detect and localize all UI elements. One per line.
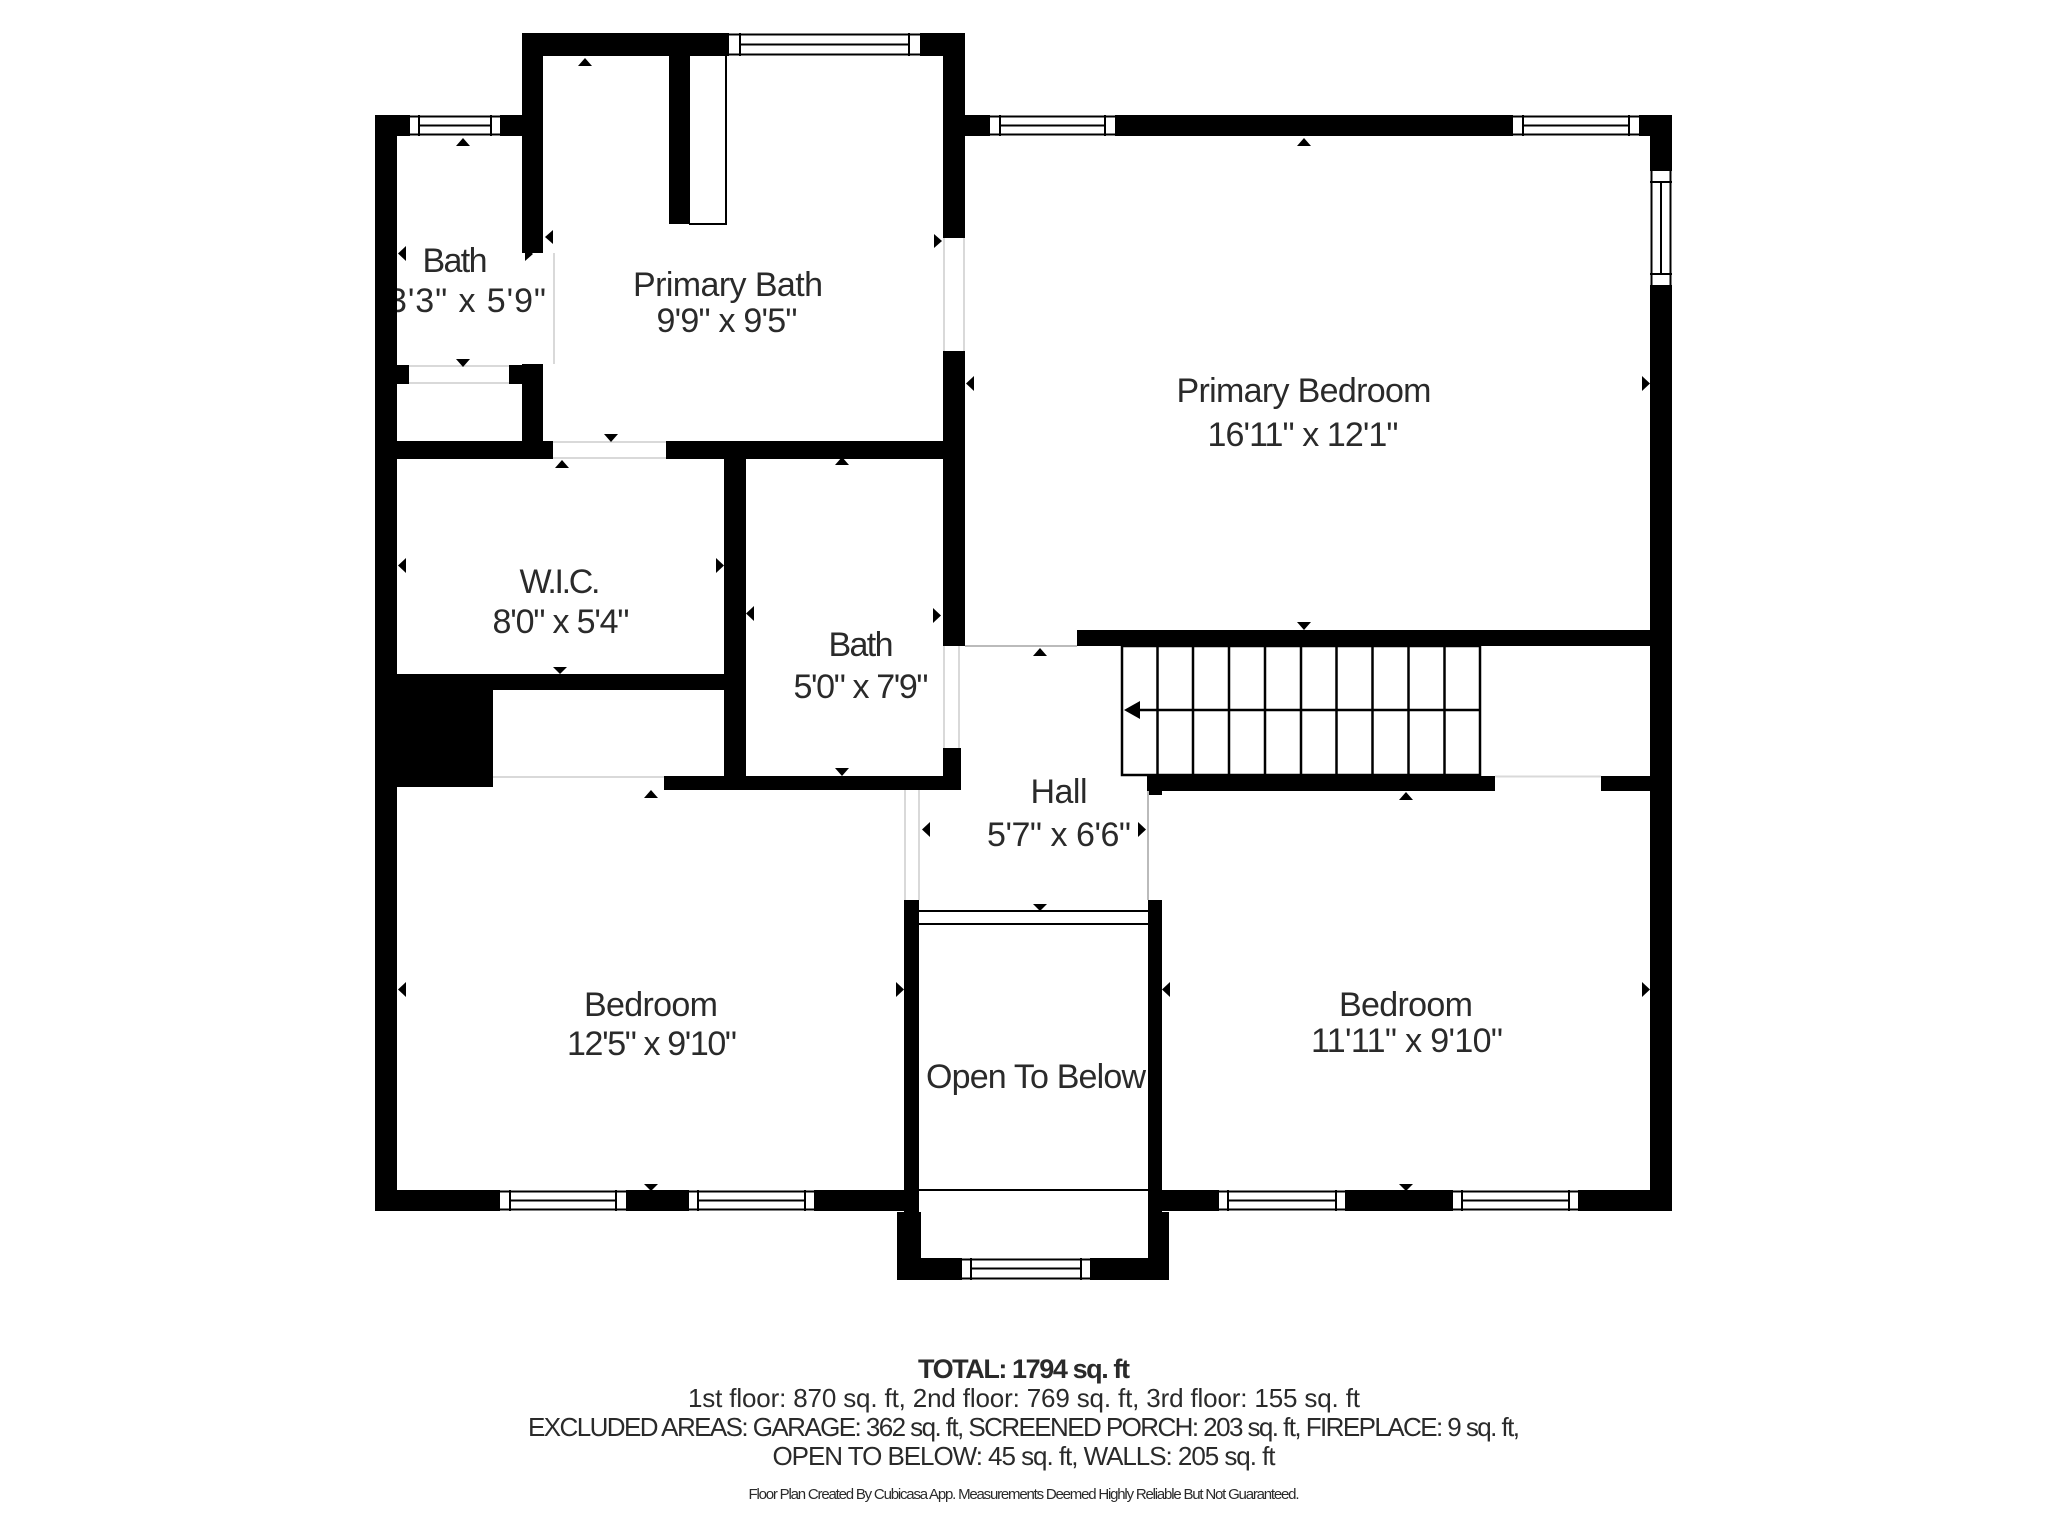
svg-text:Bath: Bath	[829, 626, 894, 664]
svg-text:Primary Bedroom: Primary Bedroom	[1177, 372, 1432, 410]
svg-text:3'3" x 5'9": 3'3" x 5'9"	[388, 282, 546, 320]
svg-text:EXCLUDED AREAS: GARAGE: 362 sq: EXCLUDED AREAS: GARAGE: 362 sq. ft, SCRE…	[528, 1412, 1520, 1442]
svg-text:Open To Below: Open To Below	[926, 1058, 1146, 1096]
svg-text:5'7" x 6'6": 5'7" x 6'6"	[987, 816, 1131, 854]
svg-text:OPEN TO BELOW: 45 sq. ft, WALL: OPEN TO BELOW: 45 sq. ft, WALLS: 205 sq.…	[773, 1441, 1277, 1471]
svg-text:Bath: Bath	[423, 242, 488, 280]
svg-text:9'9" x 9'5": 9'9" x 9'5"	[657, 302, 798, 340]
svg-text:Primary Bath: Primary Bath	[633, 266, 823, 304]
svg-text:Hall: Hall	[1031, 773, 1088, 811]
svg-text:8'0" x 5'4": 8'0" x 5'4"	[493, 603, 630, 641]
svg-text:12'5" x 9'10": 12'5" x 9'10"	[567, 1025, 737, 1063]
svg-text:Floor Plan Created By Cubicasa: Floor Plan Created By Cubicasa App. Meas…	[749, 1486, 1300, 1503]
svg-text:Bedroom: Bedroom	[584, 986, 718, 1024]
svg-text:W.I.C.: W.I.C.	[520, 563, 601, 601]
svg-text:1st floor: 870 sq. ft, 2nd flo: 1st floor: 870 sq. ft, 2nd floor: 769 sq…	[688, 1383, 1361, 1413]
svg-text:5'0" x 7'9": 5'0" x 7'9"	[794, 668, 929, 706]
svg-text:Bedroom: Bedroom	[1339, 986, 1473, 1024]
svg-text:TOTAL: 1794 sq. ft: TOTAL: 1794 sq. ft	[918, 1354, 1130, 1384]
svg-text:16'11" x 12'1": 16'11" x 12'1"	[1208, 416, 1399, 454]
svg-text:11'11" x 9'10": 11'11" x 9'10"	[1311, 1022, 1503, 1060]
